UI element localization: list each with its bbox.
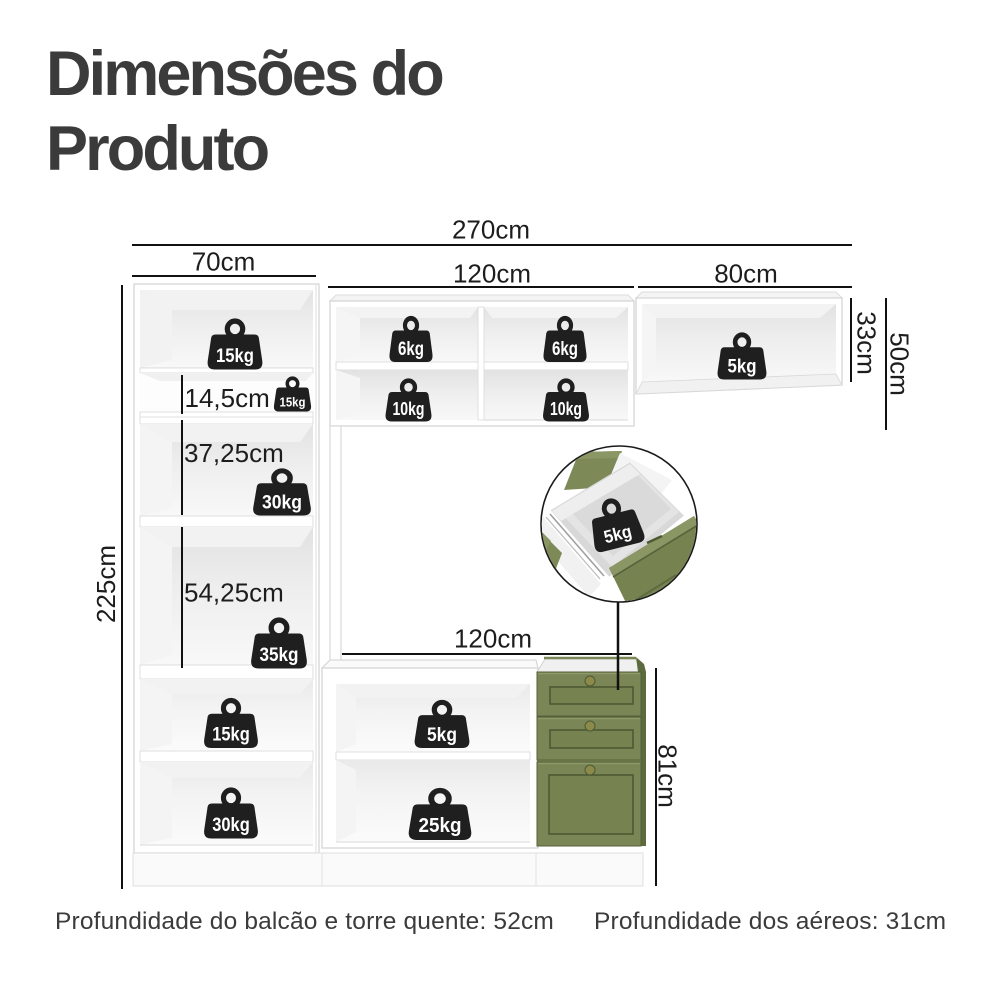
svg-text:14,5cm: 14,5cm	[185, 383, 270, 413]
svg-text:70cm: 70cm	[192, 247, 256, 277]
svg-text:6kg: 6kg	[398, 339, 424, 360]
svg-text:5kg: 5kg	[427, 725, 457, 746]
svg-text:120cm: 120cm	[454, 624, 532, 654]
svg-text:10kg: 10kg	[550, 399, 582, 419]
svg-text:33cm: 33cm	[852, 311, 882, 375]
svg-text:15kg: 15kg	[216, 346, 254, 367]
svg-text:30kg: 30kg	[212, 815, 250, 836]
svg-text:54,25cm: 54,25cm	[184, 578, 284, 608]
svg-text:15kg: 15kg	[280, 396, 306, 410]
svg-text:50cm: 50cm	[885, 332, 915, 396]
svg-text:15kg: 15kg	[212, 725, 250, 746]
svg-text:225cm: 225cm	[91, 545, 121, 623]
svg-text:35kg: 35kg	[260, 645, 299, 666]
svg-text:30kg: 30kg	[262, 493, 302, 514]
svg-text:6kg: 6kg	[552, 339, 578, 360]
svg-text:37,25cm: 37,25cm	[184, 438, 284, 468]
svg-text:5kg: 5kg	[728, 357, 757, 378]
svg-text:25kg: 25kg	[419, 815, 462, 837]
svg-text:120cm: 120cm	[453, 259, 531, 289]
svg-text:81cm: 81cm	[653, 744, 683, 808]
svg-text:80cm: 80cm	[714, 259, 778, 289]
svg-text:270cm: 270cm	[452, 215, 530, 245]
svg-text:10kg: 10kg	[393, 399, 425, 419]
